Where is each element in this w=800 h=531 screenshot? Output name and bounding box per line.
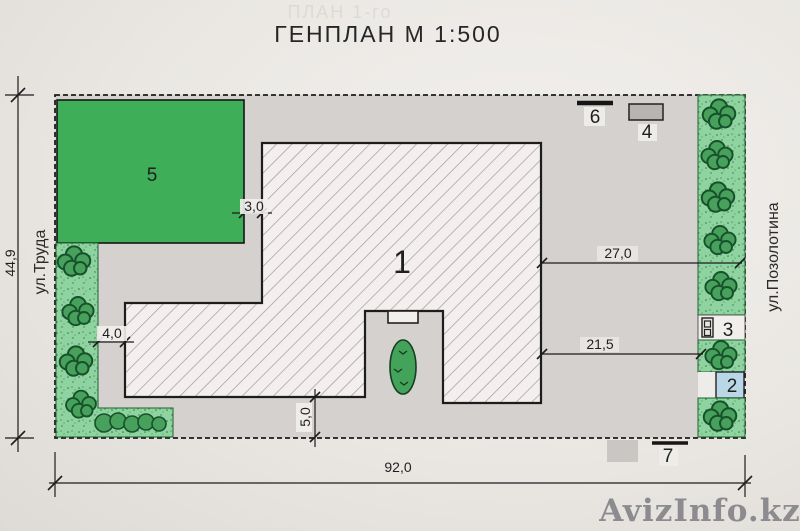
- flowerbed-icon: [390, 340, 416, 394]
- object-6-label: 6: [590, 107, 601, 128]
- dim-44-9: 44,9: [2, 249, 18, 276]
- dim-27-0: 27,0: [604, 245, 631, 261]
- watermark-text: AvizInfo.kz: [598, 493, 800, 529]
- site-area: 5 3: [55, 95, 745, 438]
- dim-5-0: 5,0: [297, 407, 313, 427]
- page-title: ГЕНПЛАН М 1:500: [274, 21, 501, 47]
- driveway-area: [607, 440, 638, 462]
- object-2-label: 2: [727, 376, 738, 397]
- lawn-5-label: 5: [147, 165, 158, 186]
- street-label-pozolotina: ул.Позолотина: [765, 202, 782, 312]
- gap-area: [698, 372, 716, 398]
- genplan-drawing: ПЛАН 1-го ГЕНПЛАН М 1:500 5: [0, 0, 800, 531]
- object-3-label: 3: [723, 320, 734, 341]
- dim-92-0: 92,0: [384, 459, 411, 475]
- dim-4-0: 4,0: [102, 325, 122, 341]
- ghost-title-text: ПЛАН 1-го: [288, 2, 393, 22]
- building-1-label: 1: [393, 244, 411, 280]
- building-porch: [388, 311, 418, 323]
- object-7-label: 7: [663, 446, 674, 467]
- object-4-label: 4: [642, 122, 653, 143]
- dim-3-0: 3,0: [244, 198, 264, 214]
- street-label-truda: ул.Труда: [32, 230, 49, 295]
- dim-21-5: 21,5: [586, 336, 613, 352]
- object-4-area: [629, 104, 663, 120]
- scanned-site-plan-photo: ПЛАН 1-го ГЕНПЛАН М 1:500 5: [0, 0, 800, 531]
